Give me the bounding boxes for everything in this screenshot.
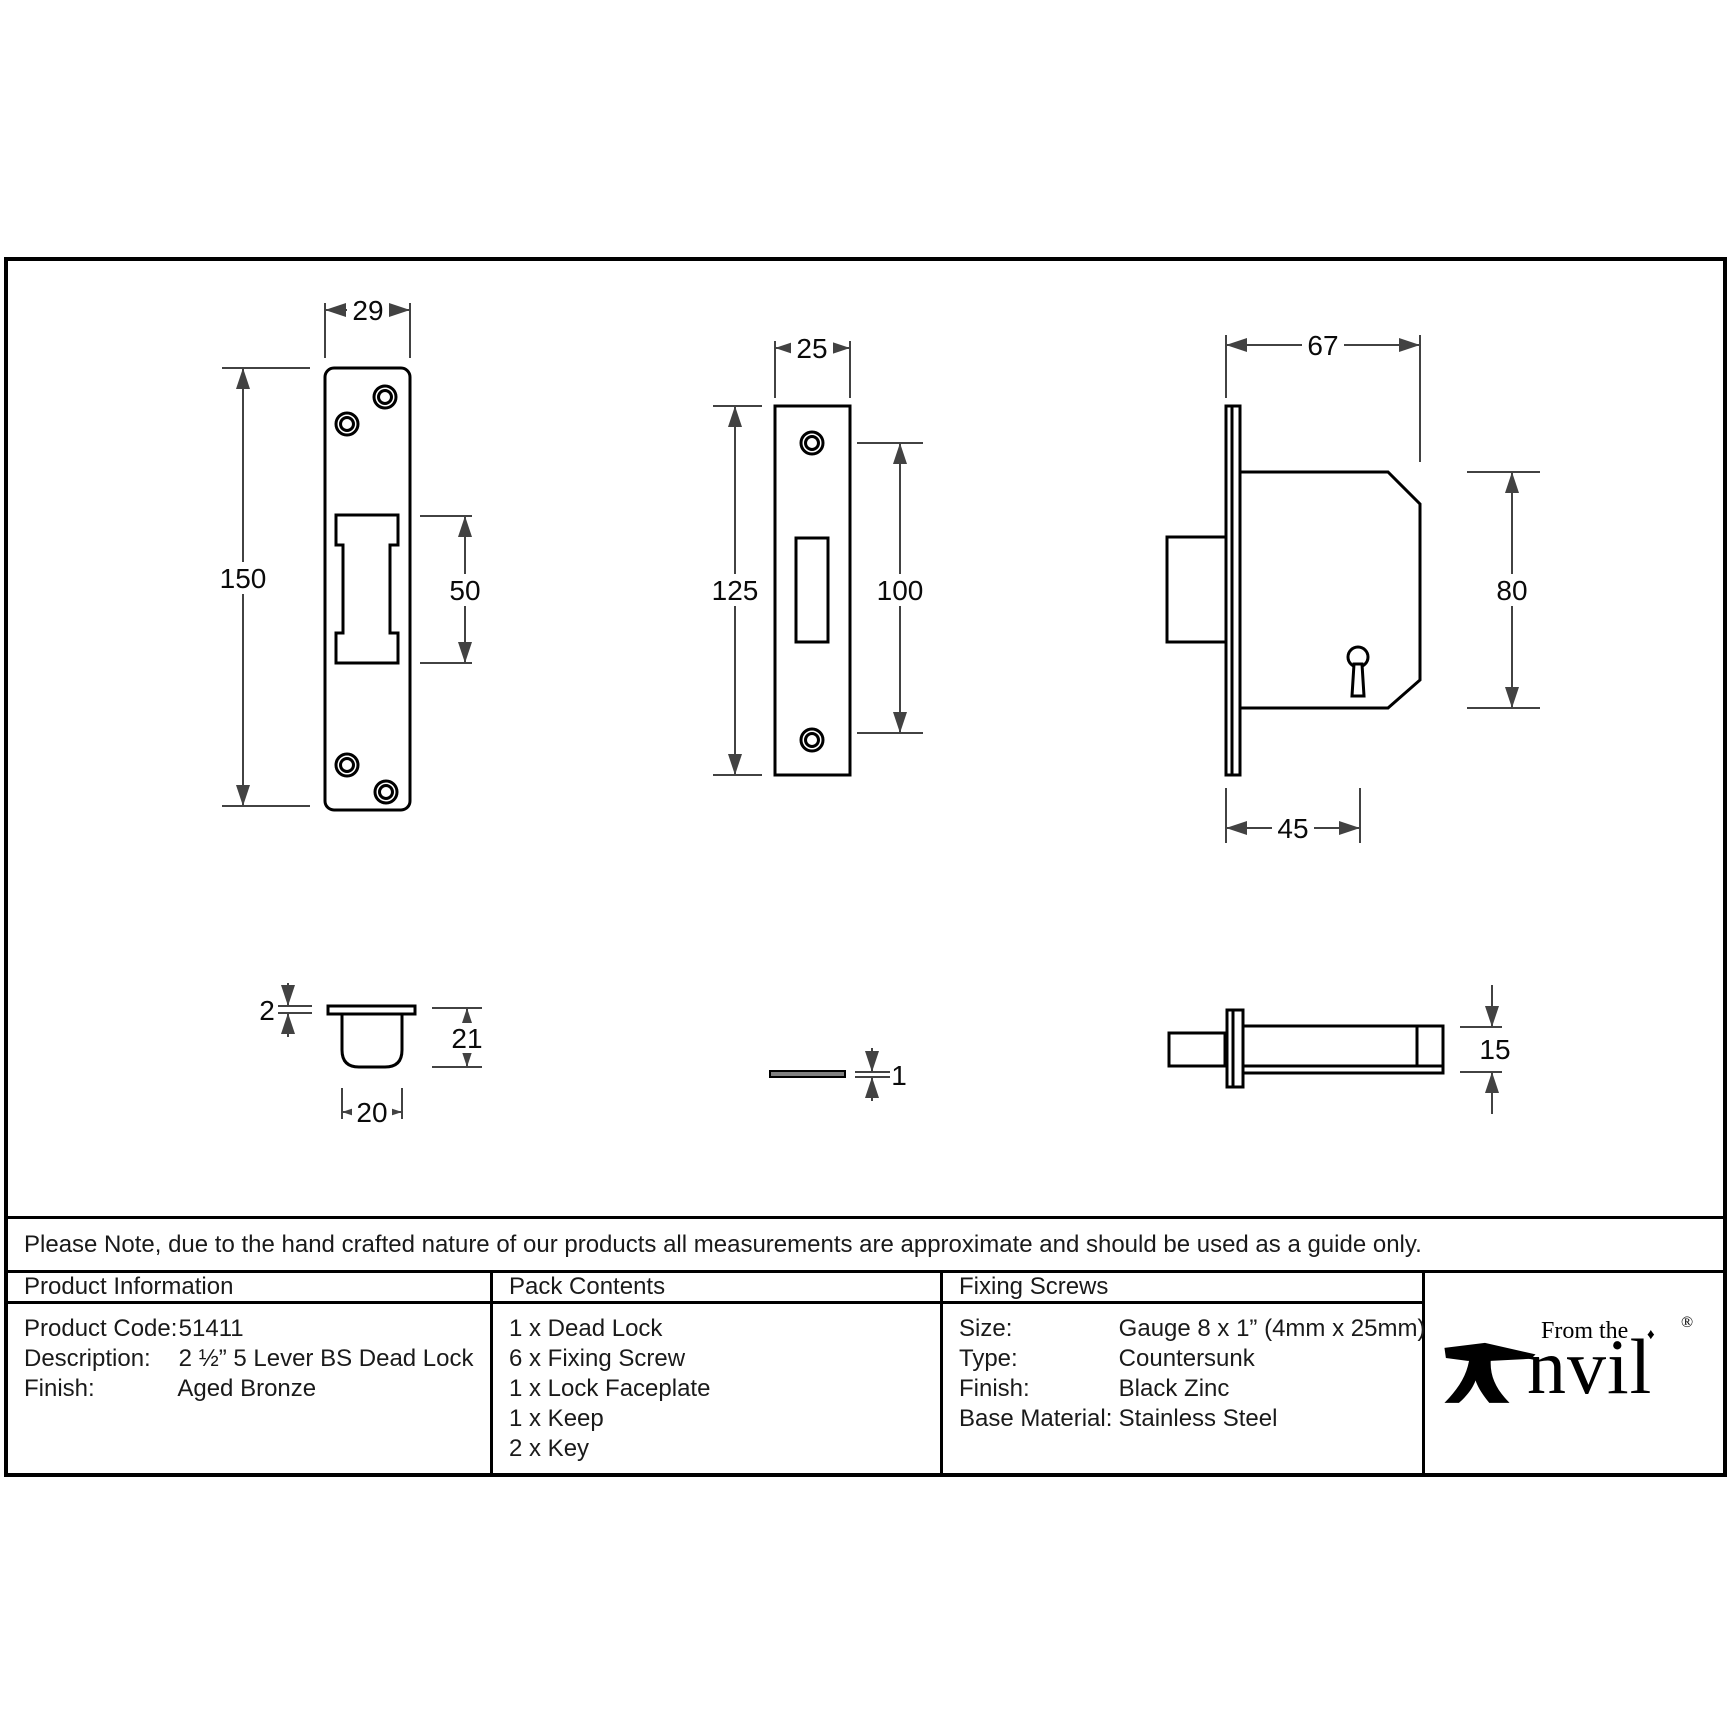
lock-faceplate-front-view: 29 150 50 xyxy=(214,294,486,810)
screw-finish-value: Black Zinc xyxy=(1119,1375,1230,1402)
technical-drawings: 29 150 50 xyxy=(8,261,1723,1216)
drawing-sheet: 29 150 50 xyxy=(4,257,1727,1477)
keep-screw-holes xyxy=(801,432,823,751)
screw-material-row: Base Material: Stainless Steel xyxy=(959,1404,1422,1434)
screw-size-row: Size: Gauge 8 x 1” (4mm x 25mm) xyxy=(959,1314,1422,1344)
dim-15: 15 xyxy=(1479,1034,1510,1065)
note-text: Please Note, due to the hand crafted nat… xyxy=(24,1231,1422,1259)
registered-trademark: ® xyxy=(1681,1314,1693,1332)
product-information-header: Product Information xyxy=(8,1273,490,1304)
spec-table: Product Information Product Code: 51411 … xyxy=(8,1270,1723,1473)
dimension-faceplate-height: 150 xyxy=(214,368,310,806)
faceplate-edge-plate xyxy=(770,1071,845,1077)
fixing-screws-column: Fixing Screws Size: Gauge 8 x 1” (4mm x … xyxy=(943,1273,1425,1473)
dimension-plate-thickness: 1 xyxy=(855,1048,907,1101)
dim-20: 20 xyxy=(356,1097,387,1128)
keep-slot xyxy=(796,538,828,642)
pack-item: 1 x Dead Lock xyxy=(509,1314,940,1344)
screw-size-value: Gauge 8 x 1” (4mm x 25mm) xyxy=(1119,1315,1426,1342)
screw-material-label: Base Material: xyxy=(959,1404,1112,1434)
dimension-slot-height: 50 xyxy=(420,516,486,663)
fixing-screws-header: Fixing Screws xyxy=(943,1273,1422,1304)
description-label: Description: xyxy=(24,1344,172,1374)
dimension-keep-box-width: 20 xyxy=(342,1088,402,1128)
pack-item: 1 x Lock Faceplate xyxy=(509,1374,940,1404)
dim-29: 29 xyxy=(352,295,383,326)
keep-front-view: 25 125 100 xyxy=(706,332,929,775)
dim-50: 50 xyxy=(449,575,480,606)
screw-type-value: Countersunk xyxy=(1119,1345,1255,1372)
dim-67: 67 xyxy=(1307,330,1338,361)
dimension-keep-width: 25 xyxy=(775,332,850,398)
product-information-column: Product Information Product Code: 51411 … xyxy=(8,1273,493,1473)
dimension-keep-box-depth: 21 xyxy=(432,1008,487,1067)
dimension-backset: 45 xyxy=(1226,788,1360,844)
dim-25: 25 xyxy=(796,333,827,364)
dim-21: 21 xyxy=(451,1023,482,1054)
bolt-head xyxy=(1169,1033,1225,1066)
screw-finish-row: Finish: Black Zinc xyxy=(959,1374,1422,1404)
bolt-side-view: 15 xyxy=(1169,985,1511,1114)
fixing-screws-title: Fixing Screws xyxy=(959,1273,1108,1301)
pack-item: 2 x Key xyxy=(509,1434,940,1464)
dim-80: 80 xyxy=(1496,575,1527,606)
faceplate-bolt-slot xyxy=(336,515,398,663)
dimension-keep-hole-spacing: 100 xyxy=(857,443,929,733)
finish-label: Finish: xyxy=(24,1374,172,1404)
dimension-case-height: 80 xyxy=(1467,472,1540,708)
anvil-icon xyxy=(1443,1334,1537,1416)
finish-value: Aged Bronze xyxy=(177,1375,316,1402)
product-information-body: Product Code: 51411 Description: 2 ½” 5 … xyxy=(8,1304,490,1404)
from-the-anvil-logo: From the ♦ nvil ® xyxy=(1443,1318,1705,1428)
faceplate-side-view: 1 xyxy=(770,1048,907,1101)
dim-45: 45 xyxy=(1277,813,1308,844)
product-information-title: Product Information xyxy=(24,1273,233,1301)
lock-case-outline xyxy=(1240,472,1420,708)
product-code-value: 51411 xyxy=(179,1315,244,1342)
fixing-screws-body: Size: Gauge 8 x 1” (4mm x 25mm) Type: Co… xyxy=(943,1304,1422,1434)
pack-contents-body: 1 x Dead Lock 6 x Fixing Screw 1 x Lock … xyxy=(493,1304,940,1464)
keep-box-side-view: 2 21 20 xyxy=(259,983,487,1128)
finish-row: Finish: Aged Bronze xyxy=(24,1374,490,1404)
brand-column: From the ♦ nvil ® xyxy=(1425,1273,1723,1473)
screw-type-label: Type: xyxy=(959,1344,1112,1374)
pack-contents-column: Pack Contents 1 x Dead Lock 6 x Fixing S… xyxy=(493,1273,943,1473)
product-code-label: Product Code: xyxy=(24,1314,172,1344)
lock-body-side-view: 67 80 45 xyxy=(1167,329,1540,844)
dim-100: 100 xyxy=(877,575,924,606)
keep-box-flange xyxy=(328,1006,415,1014)
dim-2: 2 xyxy=(259,995,275,1026)
faceplate-outline xyxy=(325,368,410,810)
pack-item: 1 x Keep xyxy=(509,1404,940,1434)
dim-125: 125 xyxy=(712,575,759,606)
dimension-keep-height: 125 xyxy=(706,406,764,775)
pack-contents-title: Pack Contents xyxy=(509,1273,665,1301)
pack-item: 6 x Fixing Screw xyxy=(509,1344,940,1374)
dimension-flange-thickness: 2 xyxy=(259,983,312,1037)
screw-type-row: Type: Countersunk xyxy=(959,1344,1422,1374)
keep-box-cup xyxy=(342,1014,402,1067)
product-code-row: Product Code: 51411 xyxy=(24,1314,490,1344)
dimension-case-width: 67 xyxy=(1226,329,1420,462)
description-value: 2 ½” 5 Lever BS Dead Lock xyxy=(179,1345,474,1372)
dim-150: 150 xyxy=(220,563,267,594)
pack-contents-header: Pack Contents xyxy=(493,1273,940,1304)
dimension-faceplate-width: 29 xyxy=(325,294,410,358)
screw-finish-label: Finish: xyxy=(959,1374,1112,1404)
drawings-canvas: 29 150 50 xyxy=(8,261,1723,1216)
dimension-bolt-height: 15 xyxy=(1460,985,1511,1114)
note-row: Please Note, due to the hand crafted nat… xyxy=(8,1216,1723,1270)
screw-material-value: Stainless Steel xyxy=(1119,1405,1278,1432)
bolt-faceplate-section xyxy=(1227,1010,1243,1087)
keep-outline xyxy=(775,406,850,775)
faceplate-screw-holes xyxy=(336,386,397,803)
logo-word: nvil xyxy=(1527,1328,1652,1406)
description-row: Description: 2 ½” 5 Lever BS Dead Lock xyxy=(24,1344,490,1374)
keyhole-icon xyxy=(1348,647,1368,696)
deadbolt xyxy=(1167,537,1226,642)
screw-size-label: Size: xyxy=(959,1314,1112,1344)
dim-1: 1 xyxy=(891,1060,907,1091)
